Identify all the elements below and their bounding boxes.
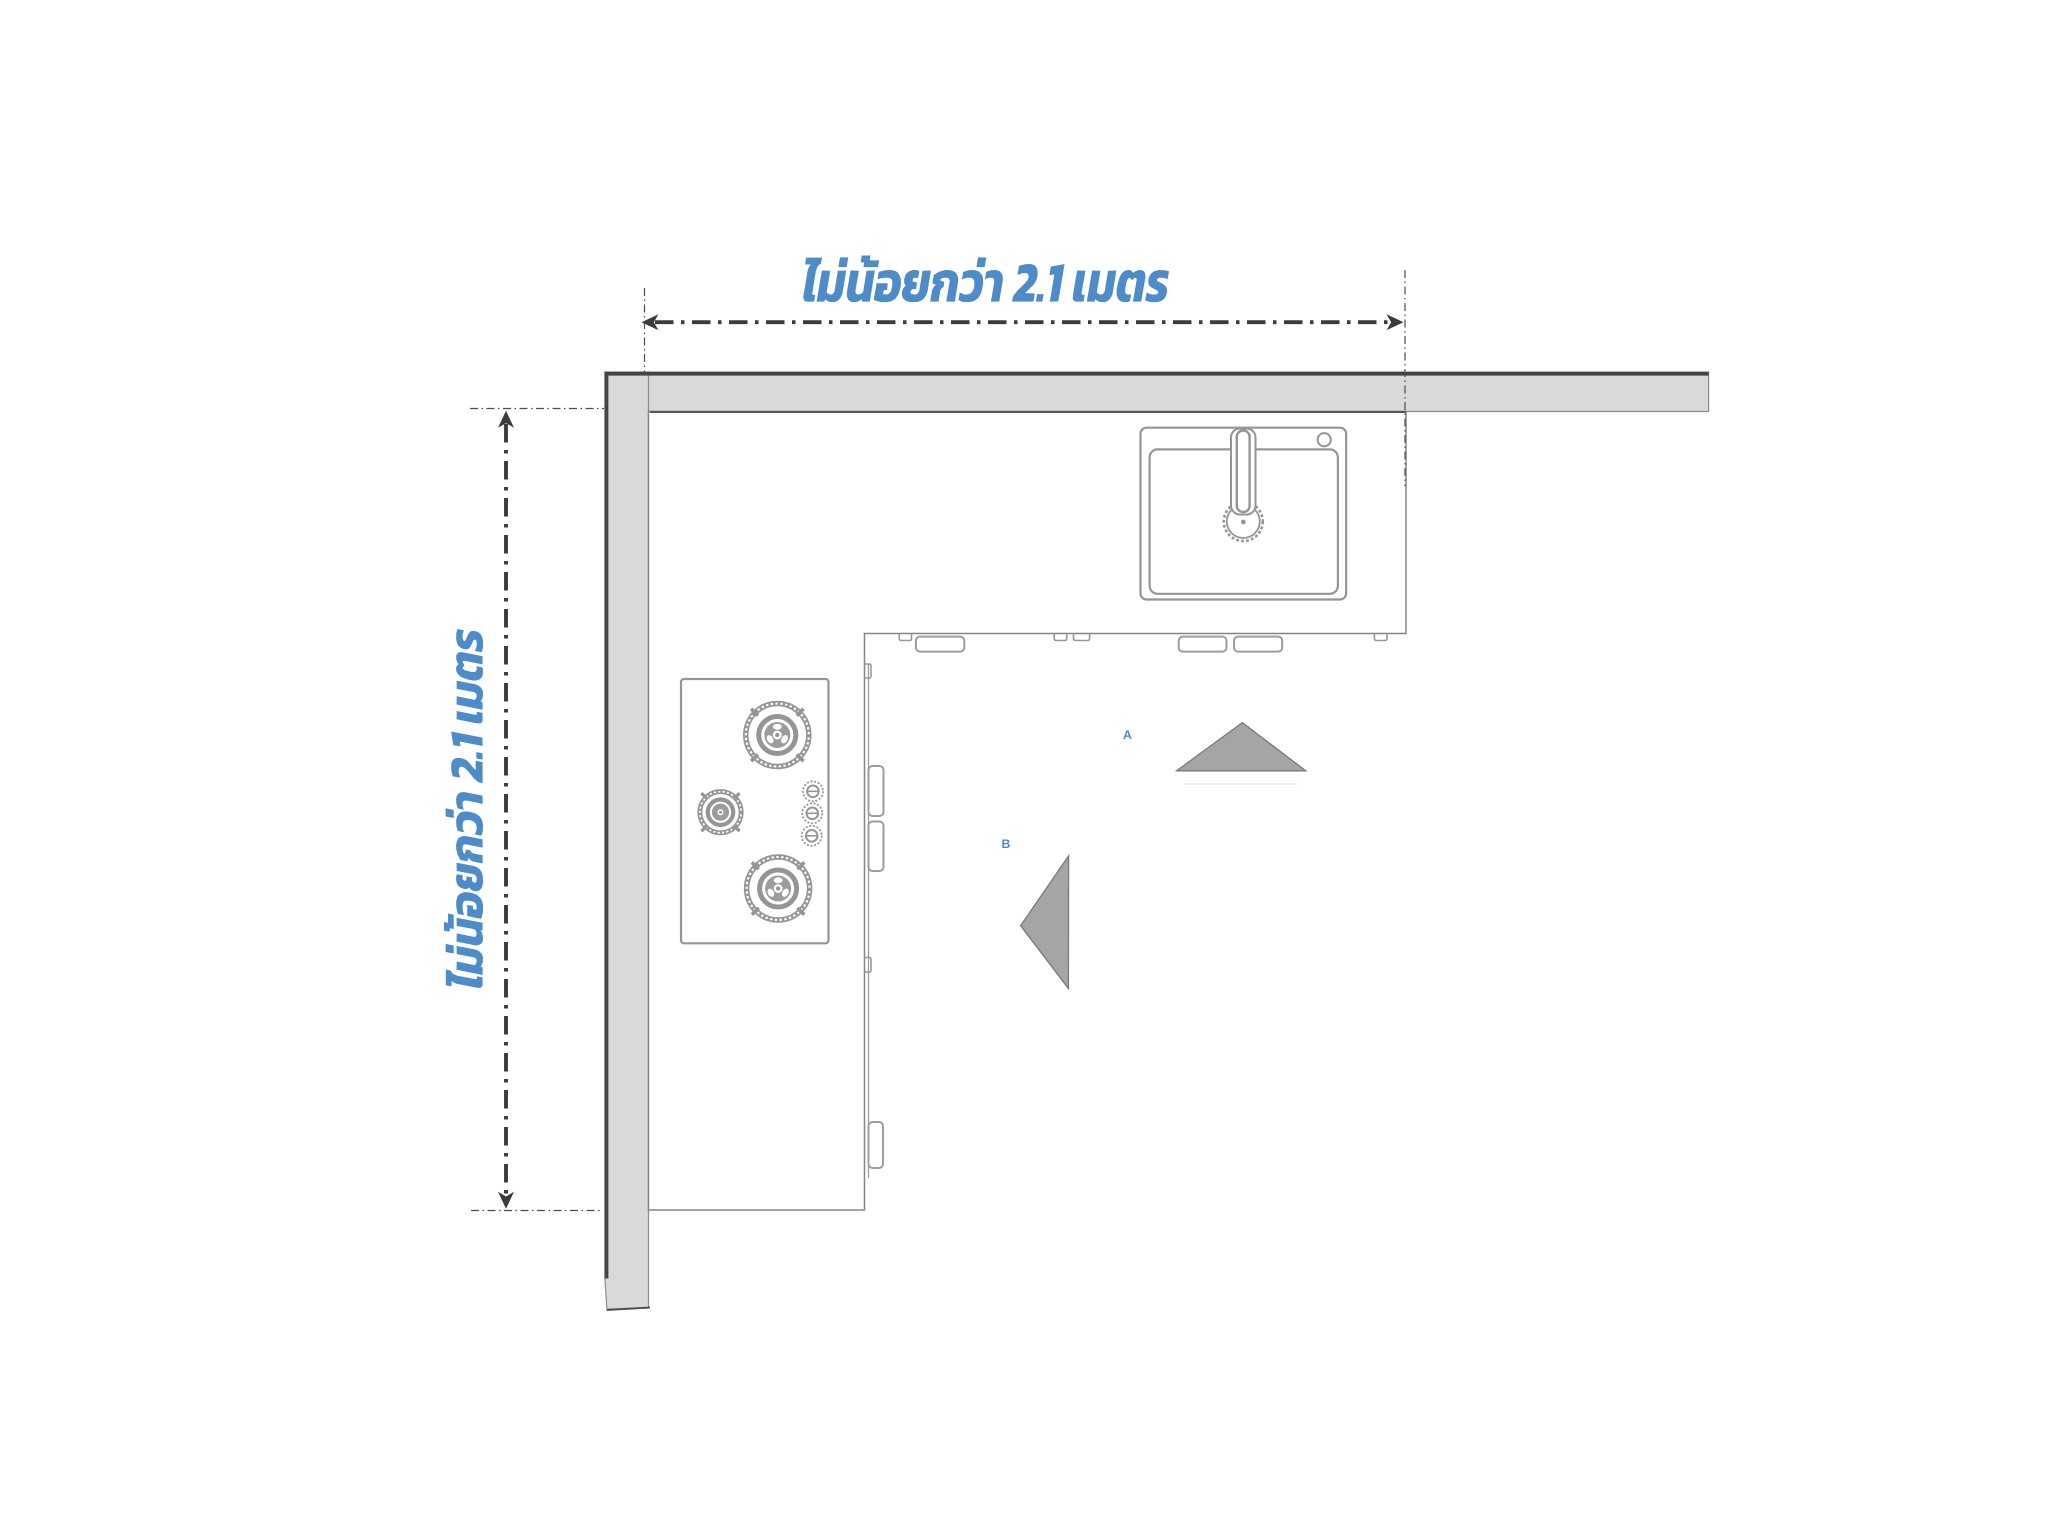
svg-text:A: A <box>1123 728 1132 742</box>
svg-text:B: B <box>1002 837 1011 851</box>
